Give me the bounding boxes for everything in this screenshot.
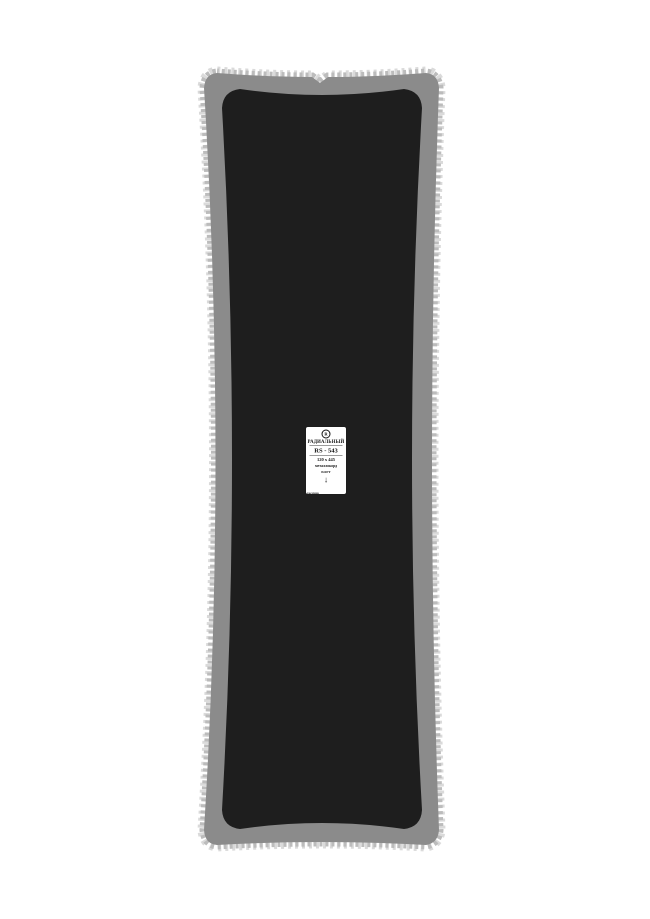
label-type-text: РАДИАЛЬНЫЙ	[308, 440, 345, 445]
label-divider	[310, 456, 343, 457]
rossvik-emblem-icon: R	[322, 430, 331, 439]
label-model-text: RS - 543	[314, 447, 337, 454]
down-arrow-icon: ↓	[324, 476, 328, 484]
patch-label-content: R РАДИАЛЬНЫЙ RS - 543 120 х 445 металлок…	[306, 427, 346, 495]
brand-wordmark: россвик	[307, 492, 319, 495]
patch-product-photo: R РАДИАЛЬНЫЙ RS - 543 120 х 445 металлок…	[0, 0, 650, 919]
patch-label: R РАДИАЛЬНЫЙ RS - 543 120 х 445 металлок…	[305, 426, 347, 495]
label-bead-text: БОРТ	[321, 470, 331, 474]
label-cord-text: металлокорд	[315, 464, 337, 469]
label-size-text: 120 х 445	[317, 457, 335, 462]
emblem-letter: R	[324, 432, 327, 437]
